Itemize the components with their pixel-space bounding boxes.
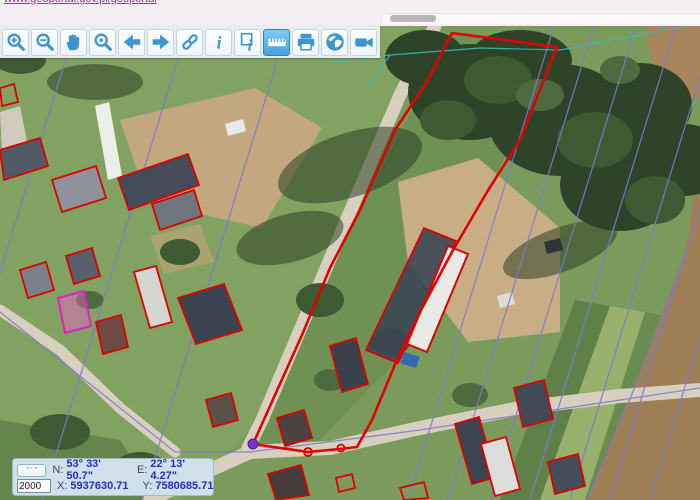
next-view-button[interactable]	[147, 29, 174, 56]
hand-icon	[63, 31, 85, 53]
identify-icon: i	[237, 31, 259, 53]
aerial-map[interactable]	[0, 26, 700, 500]
link-button[interactable]	[176, 29, 203, 56]
vertex-dot	[248, 439, 258, 449]
zoom-out-button[interactable]	[31, 29, 58, 56]
pan-button[interactable]	[60, 29, 87, 56]
arrow-right-icon	[150, 31, 172, 53]
zoom-in-button[interactable]	[2, 29, 29, 56]
previous-view-button[interactable]	[118, 29, 145, 56]
x-value: 5937630.71	[70, 480, 128, 492]
zoom-window-button[interactable]	[89, 29, 116, 56]
map-toolbar: i i	[0, 26, 380, 58]
x-label: X:	[57, 480, 67, 492]
svg-text:i: i	[247, 37, 252, 53]
chain-icon	[179, 31, 201, 53]
video-camera-icon	[353, 31, 375, 53]
east-label: E:	[137, 464, 147, 476]
horizontal-scrollbar-thumb[interactable]	[390, 15, 436, 22]
info-icon: i	[208, 31, 230, 53]
geoportal-app: www.geoportal.gov.pl/geoportal	[0, 0, 700, 500]
scale-input[interactable]	[17, 479, 51, 493]
svg-text:i: i	[216, 32, 222, 52]
info-button[interactable]: i	[205, 29, 232, 56]
globe-button[interactable]	[321, 29, 348, 56]
ruler-icon	[266, 31, 288, 53]
printer-icon	[295, 31, 317, 53]
video-button[interactable]	[350, 29, 377, 56]
coordinates-panel: ° ' " N: 53° 33' 50.7" E: 22° 13' 4.27" …	[12, 458, 214, 496]
identify-button[interactable]: i	[234, 29, 261, 56]
magnifier-minus-icon	[34, 31, 56, 53]
print-button[interactable]	[292, 29, 319, 56]
east-value: 22° 13' 4.27"	[150, 458, 209, 482]
highlighted-building[interactable]	[58, 291, 91, 333]
arrow-left-icon	[121, 31, 143, 53]
page-link[interactable]: www.geoportal.gov.pl/geoportal	[4, 0, 157, 5]
magnifier-plus-icon	[5, 31, 27, 53]
globe-icon	[324, 31, 346, 53]
north-label: N:	[52, 464, 63, 476]
north-value: 53° 33' 50.7"	[66, 458, 125, 482]
units-button[interactable]: ° ' "	[17, 464, 46, 477]
measure-button[interactable]	[263, 29, 290, 56]
y-value: 7580685.71	[155, 480, 213, 492]
y-label: Y:	[143, 480, 153, 492]
magnifier-icon	[92, 31, 114, 53]
